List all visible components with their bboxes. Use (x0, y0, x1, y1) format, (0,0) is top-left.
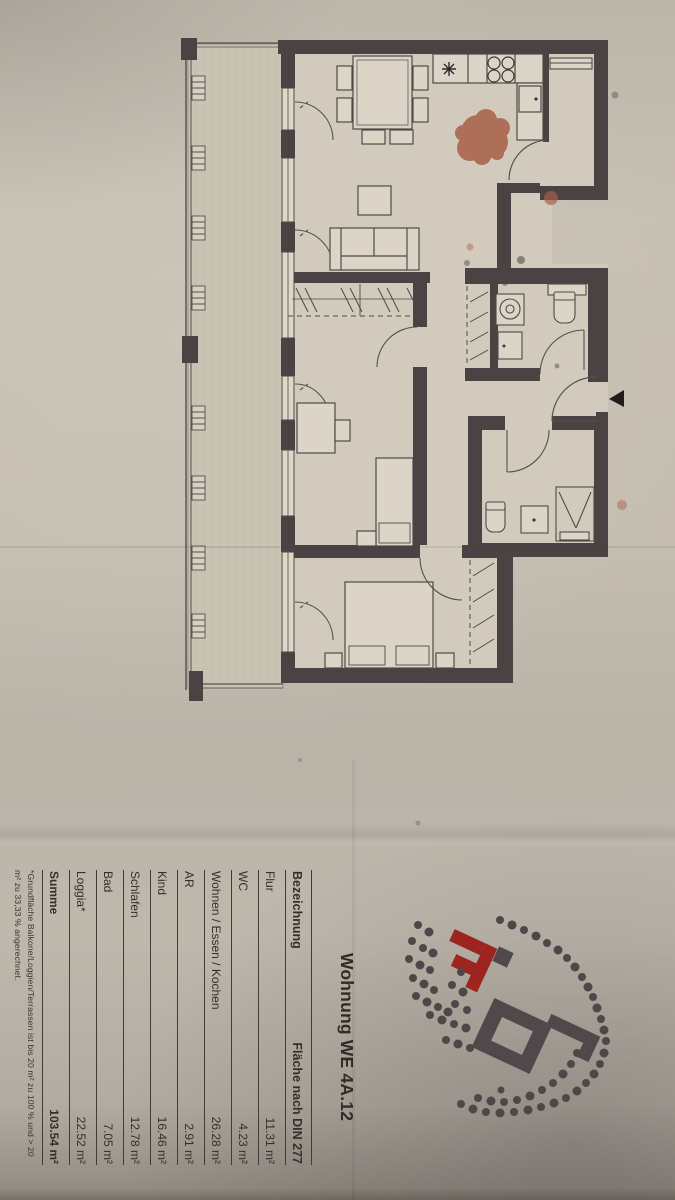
total-label: Summe (47, 871, 61, 914)
room-label: AR (182, 871, 196, 888)
total-value: 103.54 m² (47, 1109, 61, 1164)
sofa (330, 228, 419, 270)
wc-sink (498, 332, 522, 359)
table-row: Wohnen / Essen / Kochen26.28 m² (204, 870, 231, 1165)
room-area-value: 26.28 m² (209, 1117, 223, 1164)
header-area: Fläche nach DIN 277 (290, 1042, 304, 1164)
loggia-post (189, 671, 203, 701)
table-row: Bad7.05 m² (96, 870, 123, 1165)
coffee-table (358, 186, 391, 215)
room-label: Kind (155, 871, 169, 895)
room-area-value: 16.46 m² (155, 1117, 169, 1164)
room-label: Wohnen / Essen / Kochen (209, 871, 223, 1010)
room-area-value: 22.52 m² (74, 1117, 88, 1164)
paper-crease-vertical (352, 760, 355, 1200)
loggia-post (181, 38, 197, 60)
area-table-block: Wohnung WE 4A.12 Bezeichnung Fläche nach… (13, 870, 365, 1165)
room-label: Schlafen (128, 871, 142, 918)
table-row: Loggia*22.52 m² (69, 870, 96, 1165)
room-label: Flur (263, 871, 277, 892)
room-area-value: 7.05 m² (101, 1123, 115, 1164)
single-bed (376, 458, 413, 546)
room-label: Loggia* (74, 871, 88, 912)
sink-icon (534, 97, 537, 100)
table-row: Kind16.46 m² (150, 870, 177, 1165)
table-row: Flur11.31 m² (258, 870, 285, 1165)
company-logo (405, 916, 610, 1118)
paper-crease (0, 546, 675, 548)
table-total-row: Summe 103.54 m² (42, 870, 69, 1165)
desk-chair (335, 420, 350, 441)
nightstand (357, 531, 376, 546)
room-area-value: 2.91 m² (182, 1123, 196, 1164)
room-label: WC (236, 871, 250, 891)
area-table: Bezeichnung Fläche nach DIN 277 Flur11.3… (42, 870, 312, 1165)
entrance-arrow-icon (609, 390, 624, 407)
room-area-value: 12.78 m² (128, 1117, 142, 1164)
logo-red-building (434, 929, 497, 992)
loggia-post (182, 336, 198, 363)
nightstand (325, 653, 342, 668)
room-label: Bad (101, 871, 115, 892)
logo-courtyard-building (472, 998, 553, 1074)
header-name: Bezeichnung (290, 871, 304, 949)
table-row: AR2.91 m² (177, 870, 204, 1165)
photographed-floor-plan-page: Wohnung WE 4A.12 Bezeichnung Fläche nach… (0, 0, 675, 1200)
table-header: Bezeichnung Fläche nach DIN 277 (285, 870, 312, 1165)
desk (297, 403, 335, 453)
room-area-value: 11.31 m² (263, 1118, 277, 1164)
footnote: *Grundfläche Balkone/Loggien/Terrassen i… (12, 870, 37, 1165)
apartment-floor (281, 40, 608, 683)
room-area-value: 4.23 m² (236, 1123, 250, 1164)
star-symbol-icon (442, 62, 456, 76)
table-row: Schlafen12.78 m² (123, 870, 150, 1165)
table-rows: Flur11.31 m²WC4.23 m²Wohnen / Essen / Ko… (69, 870, 285, 1165)
nightstand (436, 653, 454, 668)
double-bed (345, 582, 433, 668)
paper-fold-shadow (0, 822, 675, 848)
loggia (181, 38, 283, 701)
table-row: WC4.23 m² (231, 870, 258, 1165)
logo-l-building (540, 1014, 601, 1062)
